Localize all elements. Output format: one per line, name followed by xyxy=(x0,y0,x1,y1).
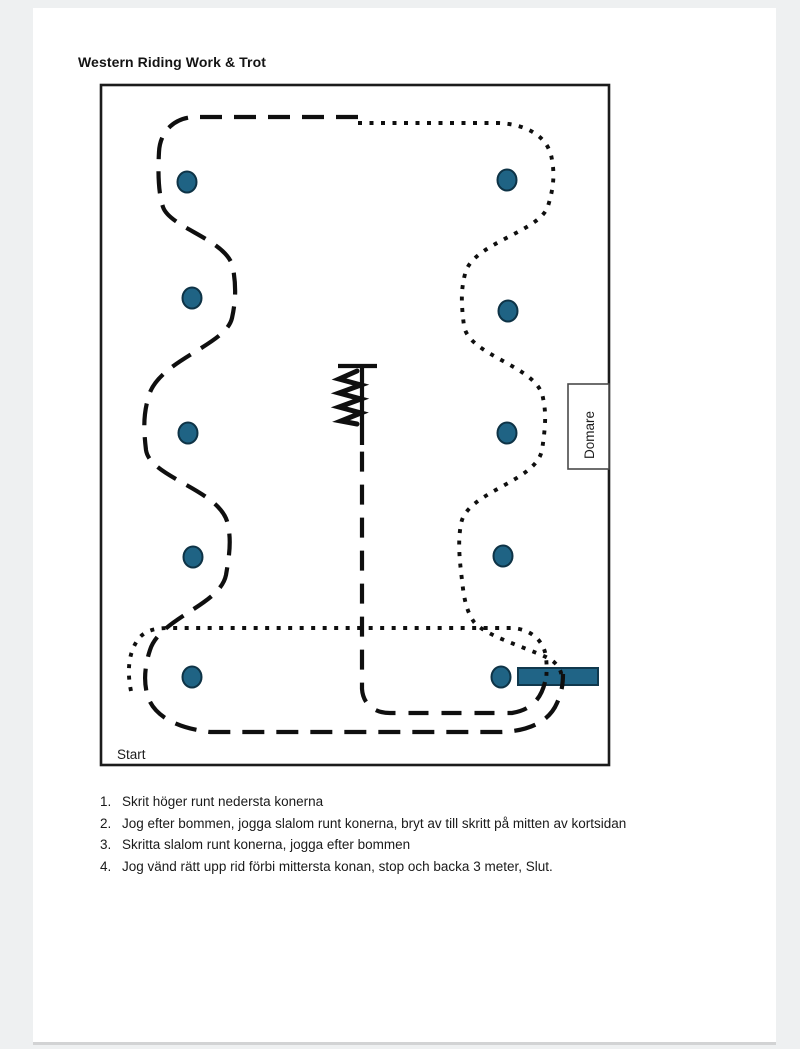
instruction-number: 1. xyxy=(100,791,122,813)
cone-marker xyxy=(183,667,202,688)
cone-marker xyxy=(178,172,197,193)
outer-dotted-path xyxy=(358,123,562,678)
instruction-text: Jog vänd rätt upp rid förbi mittersta ko… xyxy=(122,856,740,878)
instruction-item: 4. Jog vänd rätt upp rid förbi mittersta… xyxy=(100,856,740,878)
ground-pole xyxy=(518,668,598,685)
instruction-text: Jog efter bommen, jogga slalom runt kone… xyxy=(122,813,740,835)
cone-marker xyxy=(498,170,517,191)
cone-marker xyxy=(492,667,511,688)
instruction-item: 1. Skrit höger runt nedersta konerna xyxy=(100,791,740,813)
back-up-zigzag xyxy=(339,371,361,424)
instruction-item: 2. Jog efter bommen, jogga slalom runt k… xyxy=(100,813,740,835)
cone-marker xyxy=(494,546,513,567)
cone-marker xyxy=(498,423,517,444)
document-viewer: { "title": "Western Riding Work & Trot",… xyxy=(0,0,800,1049)
start-label: Start xyxy=(117,747,146,762)
judge-box: Domare xyxy=(568,384,609,469)
document-page: Western Riding Work & Trot xyxy=(33,8,776,1045)
instructions-list: 1. Skrit höger runt nedersta konerna 2. … xyxy=(100,791,740,877)
instruction-item: 3. Skritta slalom runt konerna, jogga ef… xyxy=(100,834,740,856)
instruction-number: 4. xyxy=(100,856,122,878)
cone-marker xyxy=(183,288,202,309)
instruction-number: 2. xyxy=(100,813,122,835)
instruction-text: Skritta slalom runt konerna, jogga efter… xyxy=(122,834,740,856)
cone-marker xyxy=(179,423,198,444)
judge-label: Domare xyxy=(582,411,597,459)
cone-marker xyxy=(184,547,203,568)
instruction-text: Skrit höger runt nedersta konerna xyxy=(122,791,740,813)
cone-marker xyxy=(499,301,518,322)
instruction-number: 3. xyxy=(100,834,122,856)
course-diagram: Domare Start xyxy=(0,0,800,1049)
